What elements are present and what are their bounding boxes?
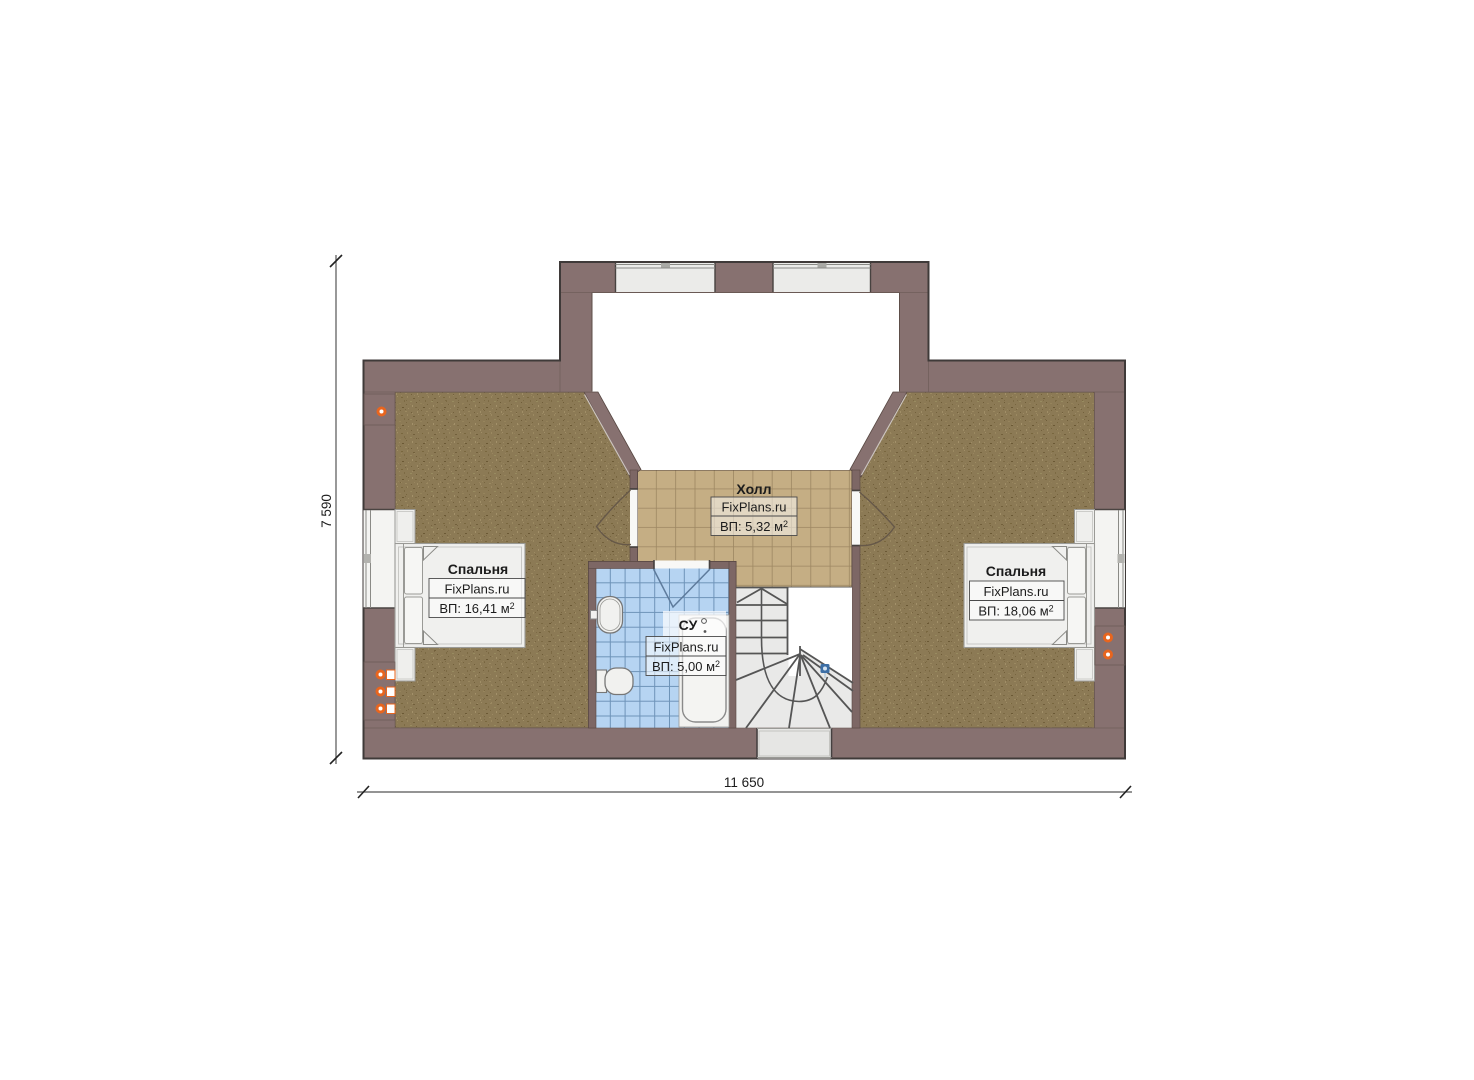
svg-text:Спальня: Спальня: [448, 561, 508, 577]
svg-text:Спальня: Спальня: [986, 563, 1046, 579]
svg-text:FixPlans.ru: FixPlans.ru: [721, 500, 786, 515]
svg-text:11 650: 11 650: [724, 775, 764, 790]
svg-text:FixPlans.ru: FixPlans.ru: [983, 584, 1048, 599]
svg-text:ВП: 16,41 м2: ВП: 16,41 м2: [439, 601, 514, 616]
svg-text:ВП: 5,00 м2: ВП: 5,00 м2: [652, 659, 720, 674]
svg-text:ВП: 18,06 м2: ВП: 18,06 м2: [978, 604, 1053, 619]
svg-text:FixPlans.ru: FixPlans.ru: [444, 582, 509, 597]
svg-text:7 590: 7 590: [319, 494, 334, 528]
svg-text:FixPlans.ru: FixPlans.ru: [653, 640, 718, 655]
svg-text:Холл: Холл: [736, 481, 771, 497]
svg-text:ВП: 5,32 м2: ВП: 5,32 м2: [720, 519, 788, 534]
svg-text:СУ: СУ: [679, 617, 698, 633]
